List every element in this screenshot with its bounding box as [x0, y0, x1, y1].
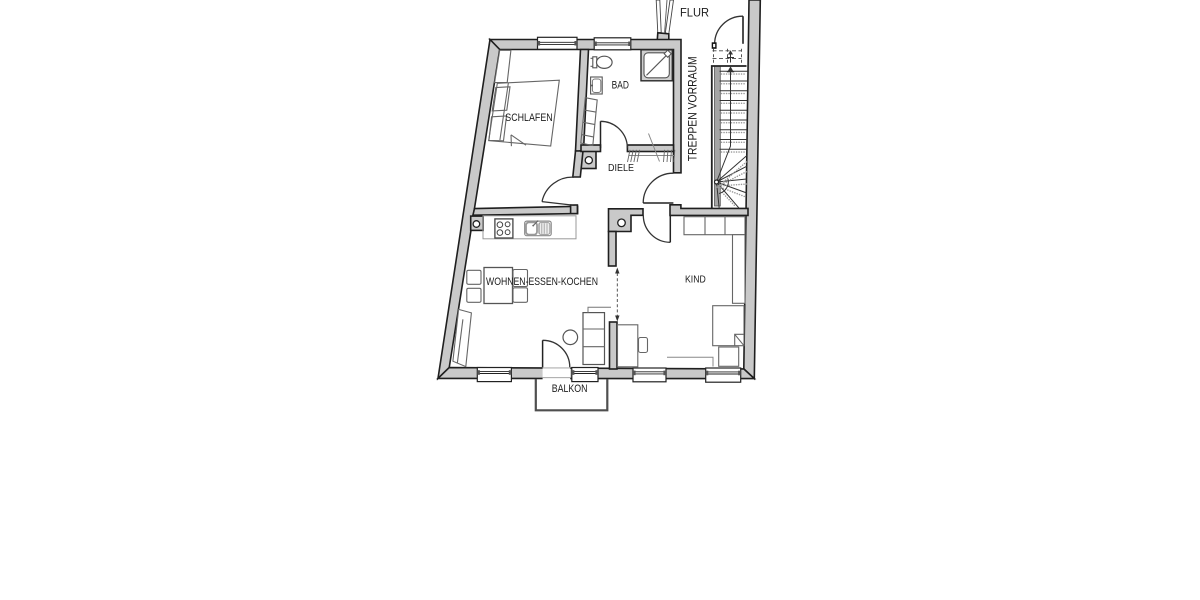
svg-text:DIELE: DIELE — [608, 162, 634, 174]
svg-text:BAD: BAD — [612, 79, 629, 91]
svg-text:FLUR: FLUR — [680, 6, 709, 20]
svg-text:KIND: KIND — [685, 274, 706, 286]
svg-text:WOHNEN-ESSEN-KOCHEN: WOHNEN-ESSEN-KOCHEN — [486, 276, 598, 288]
svg-text:SCHLAFEN: SCHLAFEN — [505, 112, 552, 124]
svg-text:TREPPEN VORRAUM: TREPPEN VORRAUM — [685, 56, 699, 161]
svg-text:BALKON: BALKON — [552, 383, 588, 395]
